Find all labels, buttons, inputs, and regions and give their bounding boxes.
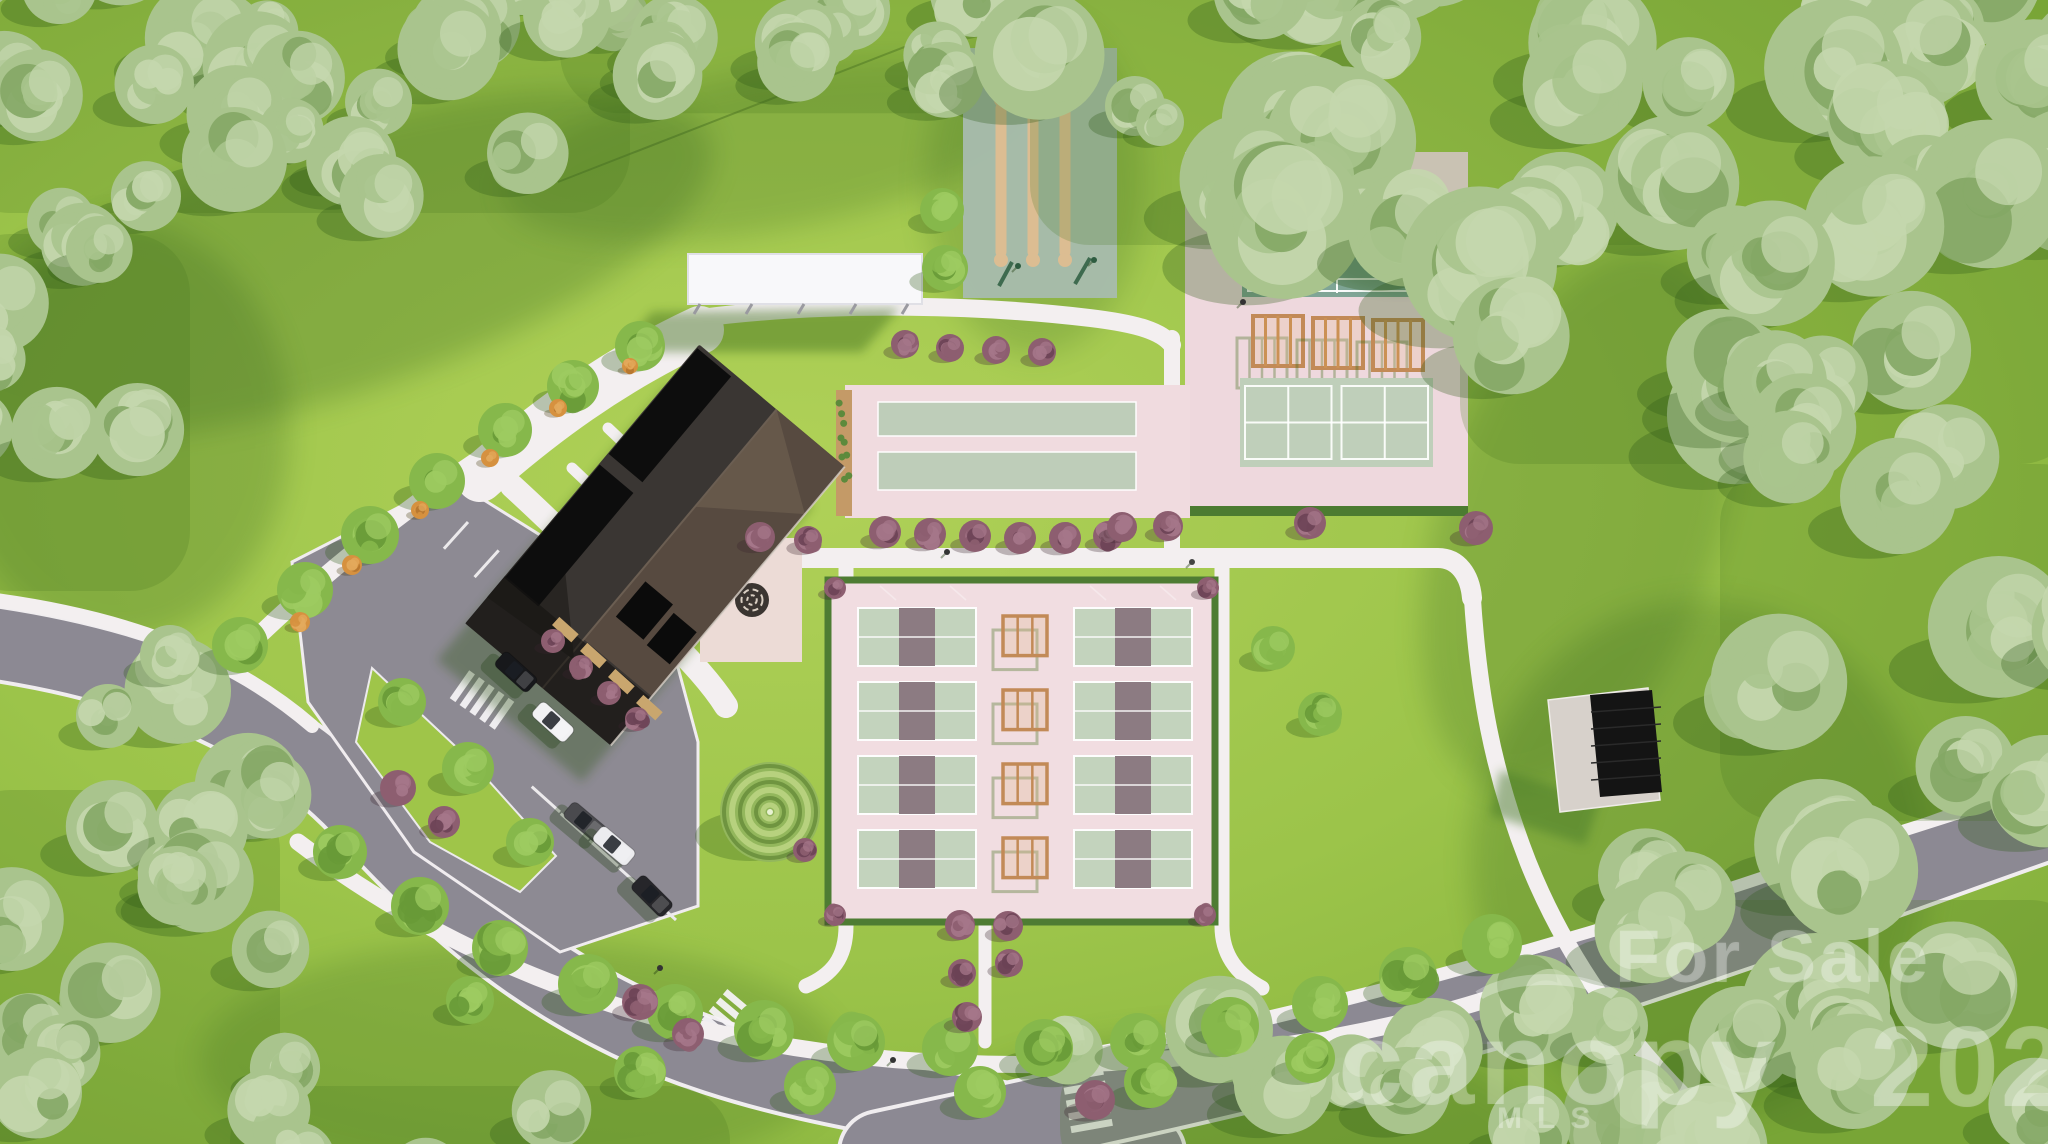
tree-highlight bbox=[1522, 1096, 1559, 1133]
tree-highlight bbox=[1905, 0, 1962, 55]
tree-highlight bbox=[948, 338, 961, 351]
tree-foliage bbox=[361, 541, 379, 559]
tree-highlight bbox=[629, 360, 636, 367]
tree-highlight bbox=[964, 1006, 978, 1020]
person-figure bbox=[1240, 299, 1246, 305]
person-figure bbox=[1015, 263, 1021, 269]
tree-highlight bbox=[49, 398, 90, 439]
tree-highlight bbox=[350, 558, 359, 567]
tree-highlight bbox=[1603, 997, 1638, 1032]
tree-highlight bbox=[670, 991, 695, 1016]
tree-highlight bbox=[365, 513, 391, 539]
tree-highlight bbox=[927, 522, 941, 536]
tree-highlight bbox=[607, 684, 618, 695]
tree-highlight bbox=[262, 1079, 299, 1116]
tree-highlight bbox=[994, 340, 1007, 353]
tree-highlight bbox=[1424, 1010, 1469, 1055]
tree-highlight bbox=[500, 410, 524, 434]
tree-highlight bbox=[1638, 892, 1685, 939]
tree-highlight bbox=[685, 1022, 699, 1036]
tree-foliage bbox=[994, 918, 1007, 931]
tree-highlight bbox=[260, 762, 299, 801]
tree-highlight bbox=[1225, 1004, 1251, 1030]
vine-trellis bbox=[836, 390, 853, 516]
canopy-roof bbox=[688, 254, 922, 304]
tree-highlight bbox=[398, 684, 420, 706]
tree-highlight bbox=[1943, 937, 2000, 994]
tree-highlight bbox=[28, 1058, 69, 1099]
tree-foliage bbox=[1360, 227, 1408, 275]
tree-highlight bbox=[488, 451, 496, 459]
tree-highlight bbox=[1307, 511, 1321, 525]
tree-foliage bbox=[78, 699, 105, 726]
tree-highlight bbox=[938, 194, 958, 214]
tree-highlight bbox=[1328, 85, 1396, 153]
trellis-vine bbox=[841, 476, 848, 483]
tree-highlight bbox=[1119, 516, 1133, 530]
tree-highlight bbox=[418, 503, 426, 511]
tree-highlight bbox=[757, 526, 771, 540]
tree-highlight bbox=[759, 1008, 786, 1035]
tree-highlight bbox=[790, 32, 826, 68]
tree-highlight bbox=[1975, 138, 2042, 205]
tree-highlight bbox=[1007, 953, 1020, 966]
tree-highlight bbox=[102, 955, 147, 1000]
tree-highlight bbox=[235, 624, 260, 649]
tree-highlight bbox=[1761, 216, 1818, 273]
spiral-center bbox=[767, 809, 773, 815]
tree-highlight bbox=[373, 77, 403, 107]
tree-highlight bbox=[130, 395, 172, 437]
tree-foliage bbox=[449, 996, 469, 1016]
pickleball-pair-court bbox=[1240, 378, 1433, 467]
tree-highlight bbox=[226, 120, 273, 167]
tree-highlight bbox=[1473, 515, 1488, 530]
tree-highlight bbox=[1862, 174, 1925, 237]
tree-highlight bbox=[976, 1073, 999, 1096]
tree-highlight bbox=[583, 962, 610, 989]
tree-highlight bbox=[464, 749, 487, 772]
tree-highlight bbox=[264, 920, 299, 955]
tree-highlight bbox=[833, 907, 843, 917]
tree-highlight bbox=[1272, 160, 1343, 231]
tree-highlight bbox=[165, 633, 192, 660]
tree-highlight bbox=[395, 775, 411, 791]
tree-highlight bbox=[279, 1042, 311, 1074]
tree-highlight bbox=[1039, 1026, 1065, 1052]
tree-highlight bbox=[882, 520, 896, 534]
tree-highlight bbox=[569, 367, 592, 390]
tree-highlight bbox=[579, 658, 590, 669]
tree-highlight bbox=[432, 460, 457, 485]
tree-highlight bbox=[551, 632, 562, 643]
tree-highlight bbox=[833, 580, 843, 590]
aerial-site-rendering: For Sale canopy MLS 2023 bbox=[0, 0, 2048, 1144]
tree-highlight bbox=[1029, 6, 1087, 64]
tree-highlight bbox=[1005, 915, 1019, 929]
tree-highlight bbox=[650, 42, 690, 82]
tree-highlight bbox=[941, 251, 962, 272]
tree-highlight bbox=[1660, 132, 1721, 193]
tree-highlight bbox=[1782, 422, 1824, 464]
tree-highlight bbox=[286, 107, 315, 136]
tree-highlight bbox=[636, 1053, 659, 1076]
pavilion bbox=[1548, 688, 1662, 812]
tree-highlight bbox=[375, 164, 413, 202]
tree-highlight bbox=[806, 530, 819, 543]
tree-highlight bbox=[1146, 1063, 1169, 1086]
plaza-hedge bbox=[1185, 506, 1468, 516]
tree-highlight bbox=[1156, 104, 1178, 126]
tree-foliage bbox=[493, 142, 521, 170]
tree-highlight bbox=[1466, 206, 1536, 276]
tree-highlight bbox=[440, 11, 486, 57]
tree-foliage bbox=[430, 820, 444, 834]
tree-highlight bbox=[1681, 49, 1722, 90]
trellis-vine bbox=[840, 420, 847, 427]
tree-highlight bbox=[957, 914, 971, 928]
person-figure bbox=[657, 965, 663, 971]
tree-highlight bbox=[1269, 632, 1289, 652]
tree-highlight bbox=[1767, 631, 1828, 692]
tree-highlight bbox=[3, 880, 50, 927]
tree-highlight bbox=[1306, 1039, 1329, 1062]
tree-highlight bbox=[1017, 526, 1031, 540]
tree-highlight bbox=[1501, 292, 1554, 345]
tree-highlight bbox=[972, 524, 986, 538]
tree-highlight bbox=[290, 43, 332, 85]
tree-highlight bbox=[1040, 342, 1053, 355]
tree-highlight bbox=[148, 54, 184, 90]
tree-highlight bbox=[851, 1020, 877, 1046]
tree-highlight bbox=[1525, 969, 1574, 1018]
tree-foliage bbox=[970, 539, 980, 549]
lane-end bbox=[1058, 253, 1072, 267]
bocce-lane bbox=[878, 452, 1136, 490]
trellis-vine bbox=[838, 453, 845, 460]
tree-highlight bbox=[94, 224, 124, 254]
tree-highlight bbox=[335, 832, 359, 856]
tree-highlight bbox=[960, 963, 973, 976]
tree-highlight bbox=[300, 569, 325, 594]
person-figure bbox=[1189, 559, 1195, 565]
arbor-frame bbox=[1003, 764, 1047, 804]
tree-highlight bbox=[636, 327, 659, 350]
tree-highlight bbox=[1399, 1058, 1438, 1097]
tree-highlight bbox=[1206, 580, 1216, 590]
tree-highlight bbox=[298, 615, 307, 624]
tree-highlight bbox=[1092, 1085, 1110, 1103]
tree-highlight bbox=[170, 856, 206, 892]
tree-highlight bbox=[466, 982, 488, 1004]
tree-highlight bbox=[104, 792, 146, 834]
tree-highlight bbox=[1902, 306, 1956, 360]
person-figure bbox=[890, 1057, 896, 1063]
tree-highlight bbox=[526, 824, 548, 846]
arbor-frame bbox=[1003, 616, 1047, 656]
tree-highlight bbox=[1837, 818, 1900, 881]
tree-highlight bbox=[806, 1067, 829, 1090]
person-figure bbox=[944, 549, 950, 555]
tree-highlight bbox=[903, 334, 916, 347]
site-plan-rendering bbox=[0, 0, 2048, 1144]
tree-highlight bbox=[1062, 526, 1076, 540]
tree-foliage bbox=[517, 1099, 550, 1132]
tree-highlight bbox=[1938, 417, 1985, 464]
tree-highlight bbox=[415, 884, 441, 910]
tree-highlight bbox=[521, 123, 558, 160]
tree-highlight bbox=[1487, 922, 1514, 949]
tree-highlight bbox=[1572, 40, 1626, 94]
lane-end bbox=[1026, 253, 1040, 267]
tree-foliage bbox=[417, 512, 423, 518]
person-figure bbox=[1091, 257, 1097, 263]
lane-end bbox=[994, 253, 1008, 267]
tree-highlight bbox=[1733, 999, 1781, 1047]
tree-highlight bbox=[103, 692, 132, 721]
tree-highlight bbox=[1165, 515, 1179, 529]
tree-highlight bbox=[1877, 76, 1931, 130]
arbor-frame bbox=[1003, 690, 1047, 730]
tree-highlight bbox=[545, 1080, 581, 1116]
tree-highlight bbox=[637, 989, 653, 1005]
tree-highlight bbox=[803, 841, 814, 852]
shade-canopy bbox=[688, 254, 922, 314]
arbor-frame bbox=[1003, 838, 1047, 878]
tree-highlight bbox=[441, 810, 455, 824]
tree-highlight bbox=[1843, 1028, 1895, 1080]
tree-highlight bbox=[1403, 954, 1429, 980]
tree-highlight bbox=[635, 710, 646, 721]
tree-highlight bbox=[1374, 7, 1410, 43]
tree-highlight bbox=[29, 61, 71, 103]
tree-highlight bbox=[1133, 1020, 1158, 1045]
trellis-vine bbox=[836, 400, 843, 407]
trellis-vine bbox=[838, 410, 845, 417]
tree-highlight bbox=[1316, 698, 1336, 718]
tree-highlight bbox=[495, 927, 520, 952]
tree-highlight bbox=[140, 170, 172, 202]
tree-highlight bbox=[1203, 907, 1213, 917]
tree-highlight bbox=[1315, 983, 1340, 1008]
bocce-lane bbox=[878, 402, 1136, 436]
tree-highlight bbox=[556, 401, 564, 409]
tree-highlight bbox=[1888, 452, 1940, 504]
trellis-vine bbox=[837, 434, 844, 441]
